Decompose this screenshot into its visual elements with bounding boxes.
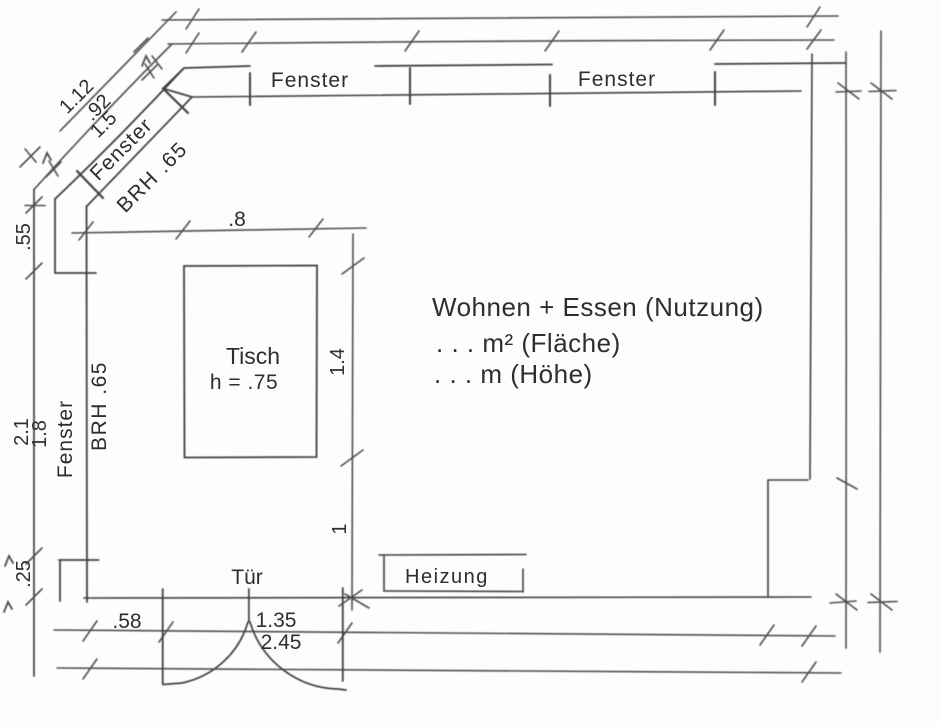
svg-text:h = .75: h = .75 [210, 371, 278, 394]
svg-text:. . . m (Höhe): . . . m (Höhe) [434, 359, 593, 389]
svg-text:.25: .25 [13, 560, 35, 588]
svg-text:.58: .58 [112, 610, 141, 633]
svg-text:Fenster: Fenster [271, 69, 349, 92]
svg-text:1.35: 1.35 [256, 609, 297, 632]
svg-text:Wohnen + Essen (Nutzung): Wohnen + Essen (Nutzung) [432, 292, 764, 322]
svg-text:. . . m² (Fläche): . . . m² (Fläche) [436, 328, 621, 358]
svg-text:1.4: 1.4 [327, 348, 349, 376]
svg-text:Fenster: Fenster [578, 68, 656, 91]
svg-text:.55: .55 [13, 223, 35, 251]
svg-text:.8: .8 [228, 208, 246, 231]
svg-text:Heizung: Heizung [405, 566, 489, 588]
svg-text:1: 1 [329, 523, 351, 534]
svg-text:BRH .65: BRH .65 [88, 361, 111, 451]
svg-text:Fenster: Fenster [54, 400, 77, 478]
svg-text:Tisch: Tisch [226, 343, 280, 369]
svg-text:Tür: Tür [231, 566, 263, 589]
svg-text:1.8: 1.8 [29, 420, 51, 448]
svg-text:2.45: 2.45 [261, 631, 302, 654]
